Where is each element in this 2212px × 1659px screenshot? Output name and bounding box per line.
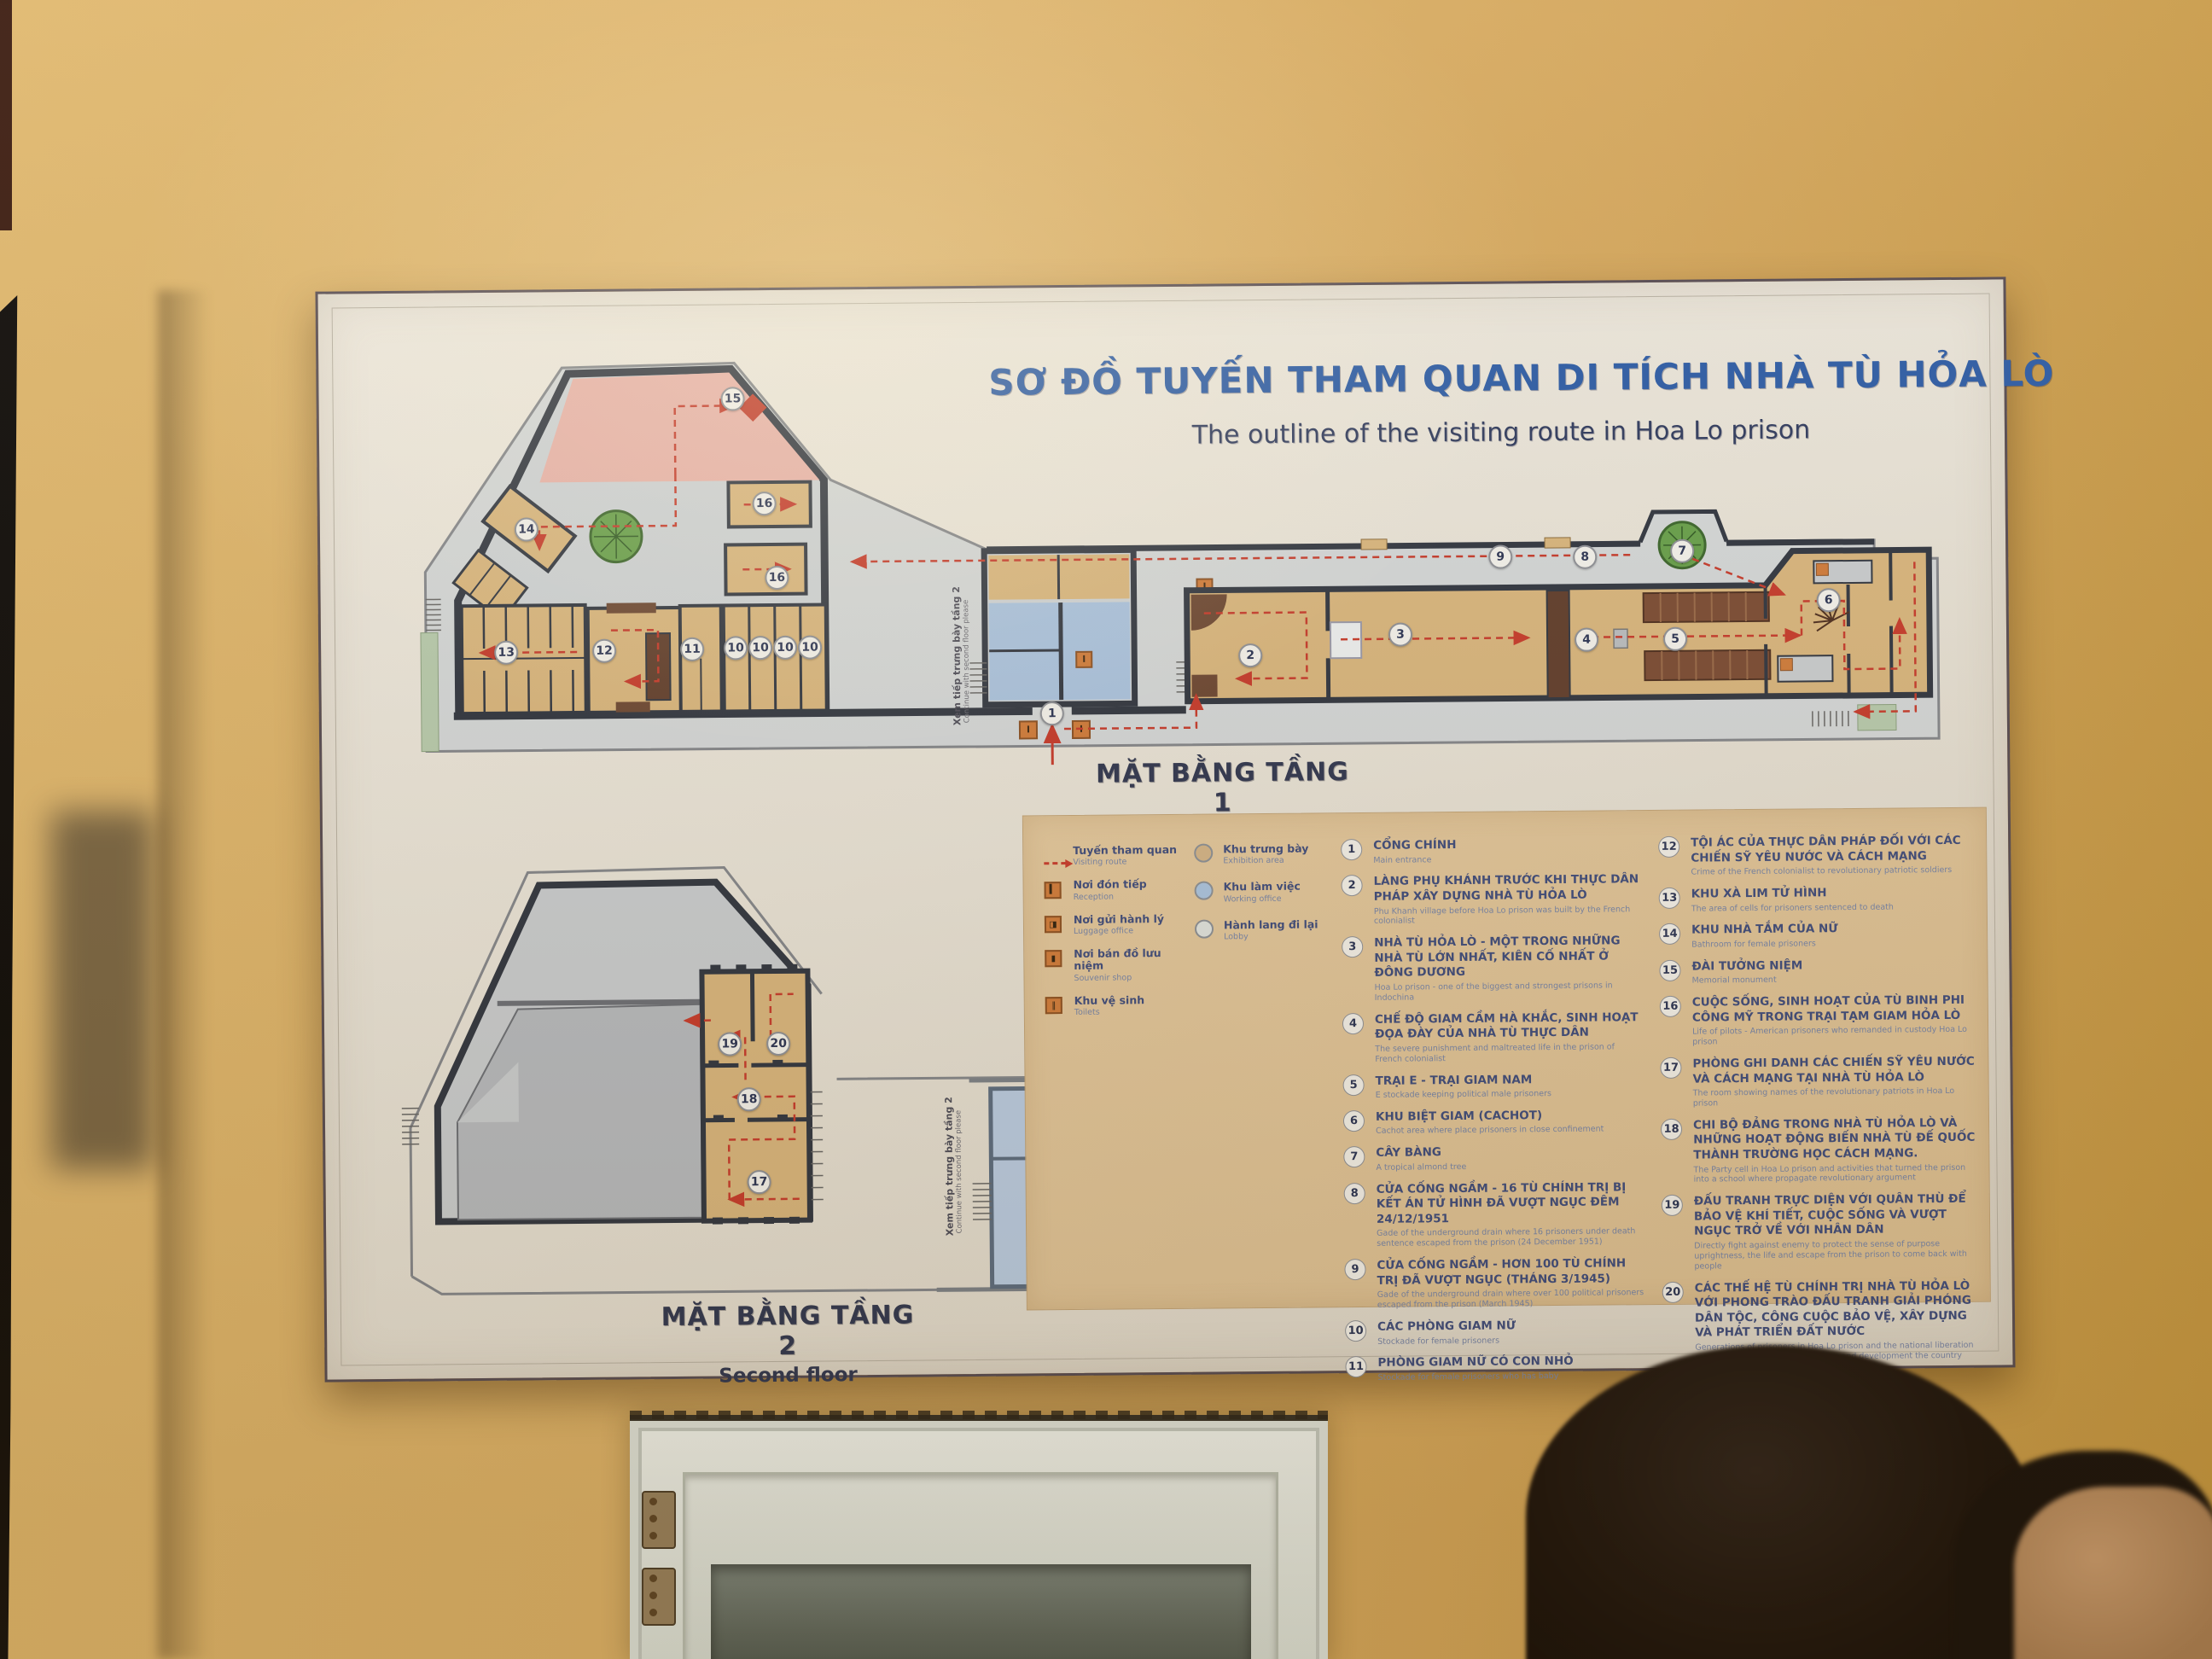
legend-numbered-item: 15 ĐÀI TƯỞNG NIỆM Memorial monument [1659, 958, 1975, 987]
plan-marker-14: 14 [515, 517, 538, 541]
legend-area-label-vi: Hành lang đi lại [1224, 918, 1318, 931]
item-number-circle: 10 [1345, 1320, 1366, 1342]
plan-marker-4: 4 [1575, 628, 1598, 652]
legend-numbered-item: 3 NHÀ TÙ HỎA LÒ - MỘT TRONG NHỮNG NHÀ TÙ… [1342, 934, 1643, 1003]
item-number-circle: 1 [1341, 839, 1362, 860]
legend-area-label-en: Exhibition area [1223, 857, 1308, 867]
legend-box: Tuyến tham quan Visiting route ▍ Nơi đón… [1022, 807, 1991, 1311]
plan-marker-15: 15 [720, 387, 744, 410]
item-number-circle: 15 [1659, 960, 1680, 981]
item-label-en: A tropical almond tree [1376, 1161, 1644, 1173]
item-number-circle: 8 [1344, 1183, 1365, 1204]
legend-items-column-2: 12 TỘI ÁC CỦA THỰC DÂN PHÁP ĐỐI VỚI CÁC … [1658, 834, 1978, 1373]
area-color-dot [1195, 882, 1214, 900]
legend-area-row: Khu làm việc Working office [1195, 881, 1336, 905]
legend-symbol-icon-slot: ◨ [1045, 914, 1074, 938]
item-number-circle: 13 [1659, 888, 1680, 909]
plan-marker-5: 5 [1663, 627, 1687, 651]
item-label-vi: CỬA CỐNG NGẦM - HƠN 100 TÙ CHÍNH TRỊ ĐÃ … [1377, 1256, 1644, 1289]
item-label-en: Main entrance [1373, 853, 1641, 866]
item-label-en: Directly fight against enemy to protect … [1694, 1239, 1977, 1272]
item-number-circle: 3 [1342, 936, 1363, 958]
legend-numbered-item: 18 CHI BỘ ĐẢNG TRONG NHÀ TÙ HỎA LÒ VÀ NH… [1661, 1116, 1977, 1186]
legend-symbol-row: Tuyến tham quan Visiting route [1044, 844, 1193, 869]
legend-area-label-en: Working office [1224, 894, 1301, 905]
item-number-circle: 7 [1343, 1146, 1365, 1167]
item-label-en: E stockade keeping political male prison… [1376, 1088, 1644, 1101]
hinge-icon [642, 1491, 676, 1549]
f2-stairs-annex [973, 1184, 992, 1220]
legend-numbered-item: 4 CHẾ ĐỘ GIAM CẦM HÀ KHẮC, SINH HOẠT ĐỌA… [1342, 1010, 1644, 1065]
doorway-reflection [51, 811, 154, 1169]
item-label-vi: CHI BỘ ĐẢNG TRONG NHÀ TÙ HỎA LÒ VÀ NHỮNG… [1693, 1116, 1976, 1164]
item-label-en: Cachot area where place prisoners in clo… [1376, 1125, 1644, 1138]
item-label-vi: KHU NHÀ TẮM CỦA NỮ [1691, 921, 1975, 938]
legend-symbol-label-vi: Tuyến tham quan [1073, 844, 1177, 857]
legend-numbered-item: 1 CỔNG CHÍNH Main entrance [1341, 836, 1641, 865]
legend-symbol-row: ▮ Nơi bán đồ lưu niệm Souvenir shop [1045, 947, 1194, 984]
item-label-vi: CỬA CỐNG NGẦM - 16 TÙ CHÍNH TRỊ BỊ KẾT Á… [1377, 1180, 1644, 1227]
continue-note-vi: Xem tiếp trưng bày tầng 2 [943, 1108, 955, 1236]
photo-of-hoa-lo-prison-route-sign: SƠ ĐỒ TUYẾN THAM QUAN DI TÍCH NHÀ TÙ HỎA… [0, 0, 2212, 1659]
item-label-vi: KHU XÀ LIM TỬ HÌNH [1691, 885, 1975, 902]
item-label-vi: CỔNG CHÍNH [1373, 836, 1641, 853]
route-arrow-icon [1044, 862, 1066, 864]
item-number-circle: 2 [1341, 875, 1362, 896]
item-number-circle: 18 [1661, 1119, 1682, 1140]
legend-area-label-vi: Khu trưng bày [1223, 843, 1308, 856]
item-label-vi: NHÀ TÙ HỎA LÒ - MỘT TRONG NHỮNG NHÀ TÙ L… [1374, 934, 1642, 981]
item-label-vi: PHÒNG GIAM NỮ CÓ CON NHỎ [1377, 1354, 1645, 1371]
item-label-en: Gade of the underground drain where over… [1377, 1288, 1645, 1310]
plan-marker-3: 3 [1388, 622, 1412, 646]
legend-symbol-row: ‖ Khu vệ sinh Toilets [1045, 993, 1195, 1018]
legend-symbol-label-vi: Nơi gửi hành lý [1074, 913, 1164, 926]
item-number-circle: 17 [1660, 1057, 1681, 1079]
legend-numbered-item: 11 PHÒNG GIAM NỮ CÓ CON NHỎ Stockade for… [1345, 1354, 1645, 1383]
legend-symbol-icon-slot [1044, 845, 1073, 869]
item-label-vi: CÁC THẾ HỆ TÙ CHÍNH TRỊ NHÀ TÙ HỎA LÒ VỚ… [1695, 1278, 1979, 1341]
continue-note-en: Continue with second floor please [954, 1108, 963, 1236]
item-number-circle: 20 [1662, 1281, 1684, 1302]
legend-items-column-1: 1 CỔNG CHÍNH Main entrance 2 LÀNG PHỤ KH… [1341, 836, 1646, 1393]
plan-marker-2: 2 [1238, 643, 1262, 667]
f1-room-13-cells [462, 605, 586, 713]
item-number-circle: 9 [1344, 1259, 1365, 1280]
item-number-circle: 11 [1345, 1356, 1366, 1377]
floor2-label-vi: MẶT BẰNG TẦNG 2 [660, 1301, 917, 1363]
plan-marker-9: 9 [1488, 544, 1512, 568]
item-label-en: Life of pilots - American prisoners who … [1692, 1025, 1976, 1048]
plan-marker-6: 6 [1817, 588, 1841, 612]
plan-marker-10c: 10 [773, 636, 797, 660]
continue-note-vi: Xem tiếp trưng bày tầng 2 [951, 597, 963, 725]
visitor-forehead [2014, 1487, 2212, 1659]
f1-room-16-lower [725, 544, 806, 595]
legend-numbered-item: 14 KHU NHÀ TẮM CỦA NỮ Bathroom for femal… [1659, 921, 1975, 951]
legend-symbol-label-en: Reception [1074, 893, 1147, 903]
plan-marker-13: 13 [494, 641, 518, 665]
plan-marker-7: 7 [1670, 539, 1694, 563]
toilets-icon: ‖ [1045, 997, 1062, 1014]
legend-area-label-en: Lobby [1224, 932, 1318, 942]
legend-symbol-label-en: Toilets [1074, 1008, 1144, 1018]
floor1-plan-drawing [399, 335, 1999, 775]
legend-symbol-label-vi: Nơi đón tiếp [1074, 878, 1147, 891]
legend-symbol-label-vi: Nơi bán đồ lưu niệm [1074, 947, 1194, 973]
case-glass [711, 1564, 1251, 1659]
doorway-shadow [158, 290, 209, 1659]
legend-numbered-item: 7 CÂY BÀNG A tropical almond tree [1343, 1144, 1644, 1173]
legend-numbered-item: 17 PHÒNG GHI DANH CÁC CHIẾN SỸ YÊU NƯỚC … [1660, 1055, 1976, 1109]
legend-symbol-icon-slot: ▍ [1045, 879, 1074, 903]
plan-marker-1: 1 [1040, 701, 1064, 725]
floor1-label-vi: MẶT BẰNG TẦNG 1 [1094, 757, 1351, 819]
legend-symbol-row: ◨ Nơi gửi hành lý Luggage office [1045, 912, 1194, 937]
f1-drain-gate-8 [1545, 538, 1570, 548]
legend-numbered-item: 13 KHU XÀ LIM TỬ HÌNH The area of cells … [1659, 885, 1975, 915]
legend-numbered-item: 16 CUỘC SỐNG, SINH HOẠT CỦA TÙ BINH PHI … [1660, 993, 1976, 1048]
plan-marker-16b: 16 [765, 566, 789, 590]
plan-marker-16a: 16 [753, 492, 777, 515]
item-number-circle: 19 [1662, 1195, 1683, 1216]
plan-marker-12: 12 [592, 639, 616, 663]
item-number-circle: 6 [1343, 1110, 1365, 1132]
item-number-circle: 4 [1342, 1013, 1364, 1034]
legend-numbered-item: 9 CỬA CỐNG NGẦM - HƠN 100 TÙ CHÍNH TRỊ Đ… [1344, 1256, 1645, 1311]
legend-numbered-item: 12 TỘI ÁC CỦA THỰC DÂN PHÁP ĐỐI VỚI CÁC … [1658, 834, 1974, 878]
legend-numbered-item: 2 LÀNG PHỤ KHÁNH TRƯỚC KHI THỰC DÂN PHÁP… [1341, 873, 1642, 928]
item-label-en: The Party cell in Hoa Lo prison and acti… [1693, 1162, 1976, 1185]
plan-marker-18: 18 [737, 1087, 761, 1111]
plan-marker-19: 19 [718, 1032, 742, 1056]
item-label-vi: ĐÀI TƯỞNG NIỆM [1691, 958, 1975, 975]
plan-marker-20: 20 [766, 1032, 790, 1056]
item-label-vi: TRẠI E - TRẠI GIAM NAM [1376, 1072, 1644, 1089]
f1-drain-gate-9 [1361, 539, 1387, 550]
item-label-en: The severe punishment and maltreated lif… [1375, 1042, 1643, 1064]
item-label-vi: CHẾ ĐỘ GIAM CẦM HÀ KHẮC, SINH HOẠT ĐỌA Đ… [1375, 1010, 1643, 1043]
legend-numbered-item: 5 TRẠI E - TRẠI GIAM NAM E stockade keep… [1343, 1072, 1644, 1101]
f2-inner-wall [498, 1002, 701, 1004]
legend-numbered-item: 6 KHU BIỆT GIAM (CACHOT) Cachot area whe… [1343, 1108, 1644, 1137]
f1-green-patch-right [1858, 705, 1896, 731]
legend-numbered-item: 19 ĐẤU TRANH TRỰC DIỆN VỚI QUÂN THÙ ĐỂ B… [1662, 1192, 1978, 1272]
legend-symbol-icon-slot: ‖ [1045, 995, 1074, 1019]
legend-symbol-icon-slot: ▮ [1045, 948, 1074, 984]
legend-area-row: Khu trưng bày Exhibition area [1194, 842, 1335, 867]
f1-stairs-left [426, 599, 441, 630]
item-number-circle: 14 [1659, 923, 1680, 945]
plan-marker-10b: 10 [748, 636, 772, 660]
item-label-en: The room showing names of the revolution… [1693, 1086, 1976, 1109]
item-label-vi: CUỘC SỐNG, SINH HOẠT CỦA TÙ BINH PHI CÔN… [1692, 993, 1976, 1026]
item-label-vi: KHU BIỆT GIAM (CACHOT) [1376, 1108, 1644, 1125]
legend-symbol-label-en: Souvenir shop [1074, 973, 1194, 983]
continue-note-floor2: Xem tiếp trưng bày tầng 2 Continue with … [943, 1108, 963, 1236]
legend-area-label-vi: Khu làm việc [1224, 881, 1301, 894]
plan-marker-11: 11 [680, 637, 704, 661]
legend-symbol-row: ▍ Nơi đón tiếp Reception [1045, 878, 1194, 903]
legend-symbols-column: Tuyến tham quan Visiting route ▍ Nơi đón… [1044, 844, 1195, 1029]
item-label-en: Stockade for female prisoners [1377, 1335, 1645, 1348]
plan-marker-17: 17 [747, 1170, 771, 1194]
floor2-label: MẶT BẰNG TẦNG 2 Second floor [660, 1301, 917, 1388]
item-label-en: Hoa Lo prison - one of the biggest and s… [1375, 981, 1643, 1003]
item-label-en: Gade of the underground drain where 16 p… [1377, 1227, 1644, 1249]
luggage-icon: ◨ [1045, 916, 1062, 933]
item-label-en: The area of cells for prisoners sentence… [1691, 901, 1975, 914]
item-label-en: Crime of the French colonialist to revol… [1691, 865, 1974, 878]
item-label-vi: ĐẤU TRANH TRỰC DIỆN VỚI QUÂN THÙ ĐỂ BẢO … [1694, 1192, 1977, 1240]
legend-symbol-label-en: Visiting route [1073, 858, 1177, 868]
visiting-route-sign-panel: SƠ ĐỒ TUYẾN THAM QUAN DI TÍCH NHÀ TÙ HỎA… [315, 276, 2015, 1382]
item-label-vi: LÀNG PHỤ KHÁNH TRƯỚC KHI THỰC DÂN PHÁP X… [1373, 873, 1641, 905]
item-label-vi: CÂY BÀNG [1376, 1144, 1644, 1161]
plan-marker-10d: 10 [798, 636, 822, 660]
item-label-en: Stockade for female prisoners who has ba… [1378, 1371, 1646, 1383]
item-number-circle: 16 [1660, 996, 1681, 1017]
item-label-vi: TỘI ÁC CỦA THỰC DÂN PHÁP ĐỐI VỚI CÁC CHI… [1691, 834, 1974, 866]
legend-area-row: Hành lang đi lại Lobby [1195, 918, 1336, 943]
item-label-vi: CÁC PHÒNG GIAM NỮ [1377, 1318, 1645, 1335]
item-number-circle: 12 [1658, 836, 1679, 858]
dust-on-case-top [630, 1411, 1328, 1419]
legend-areas-column: Khu trưng bày Exhibition area Khu làm vi… [1194, 842, 1336, 957]
item-label-en: Bathroom for female prisoners [1691, 938, 1975, 951]
plan-marker-8: 8 [1573, 545, 1597, 569]
f1-tree [591, 510, 643, 562]
display-case-below-sign [630, 1415, 1328, 1659]
item-label-en: Memorial monument [1692, 974, 1976, 987]
hinge-icon [642, 1568, 676, 1626]
plan-marker-10a: 10 [724, 636, 748, 660]
continue-note-floor1: Xem tiếp trưng bày tầng 2 Continue with … [951, 597, 971, 725]
area-color-dot [1194, 844, 1213, 863]
continue-note-en: Continue with second floor please [962, 597, 971, 725]
legend-symbol-label-en: Luggage office [1074, 927, 1164, 937]
legend-numbered-item: 10 CÁC PHÒNG GIAM NỮ Stockade for female… [1345, 1318, 1645, 1347]
floor2-label-en: Second floor [660, 1364, 916, 1388]
f1-green-strip [421, 632, 439, 751]
item-number-circle: 5 [1343, 1074, 1365, 1095]
item-label-en: Phu Khanh village before Hoa Lo prison w… [1374, 905, 1642, 927]
souvenir-icon: ▮ [1045, 950, 1062, 967]
area-color-dot [1195, 919, 1214, 938]
reception-icon: ▍ [1045, 882, 1062, 899]
item-label-vi: PHÒNG GHI DANH CÁC CHIẾN SỸ YÊU NƯỚC VÀ … [1692, 1055, 1976, 1087]
legend-numbered-item: 8 CỬA CỐNG NGẦM - 16 TÙ CHÍNH TRỊ BỊ KẾT… [1344, 1180, 1645, 1249]
f1-entrance-building [984, 550, 1135, 705]
door-frame-edge [0, 0, 12, 230]
legend-symbol-label-vi: Khu vệ sinh [1074, 994, 1144, 1007]
